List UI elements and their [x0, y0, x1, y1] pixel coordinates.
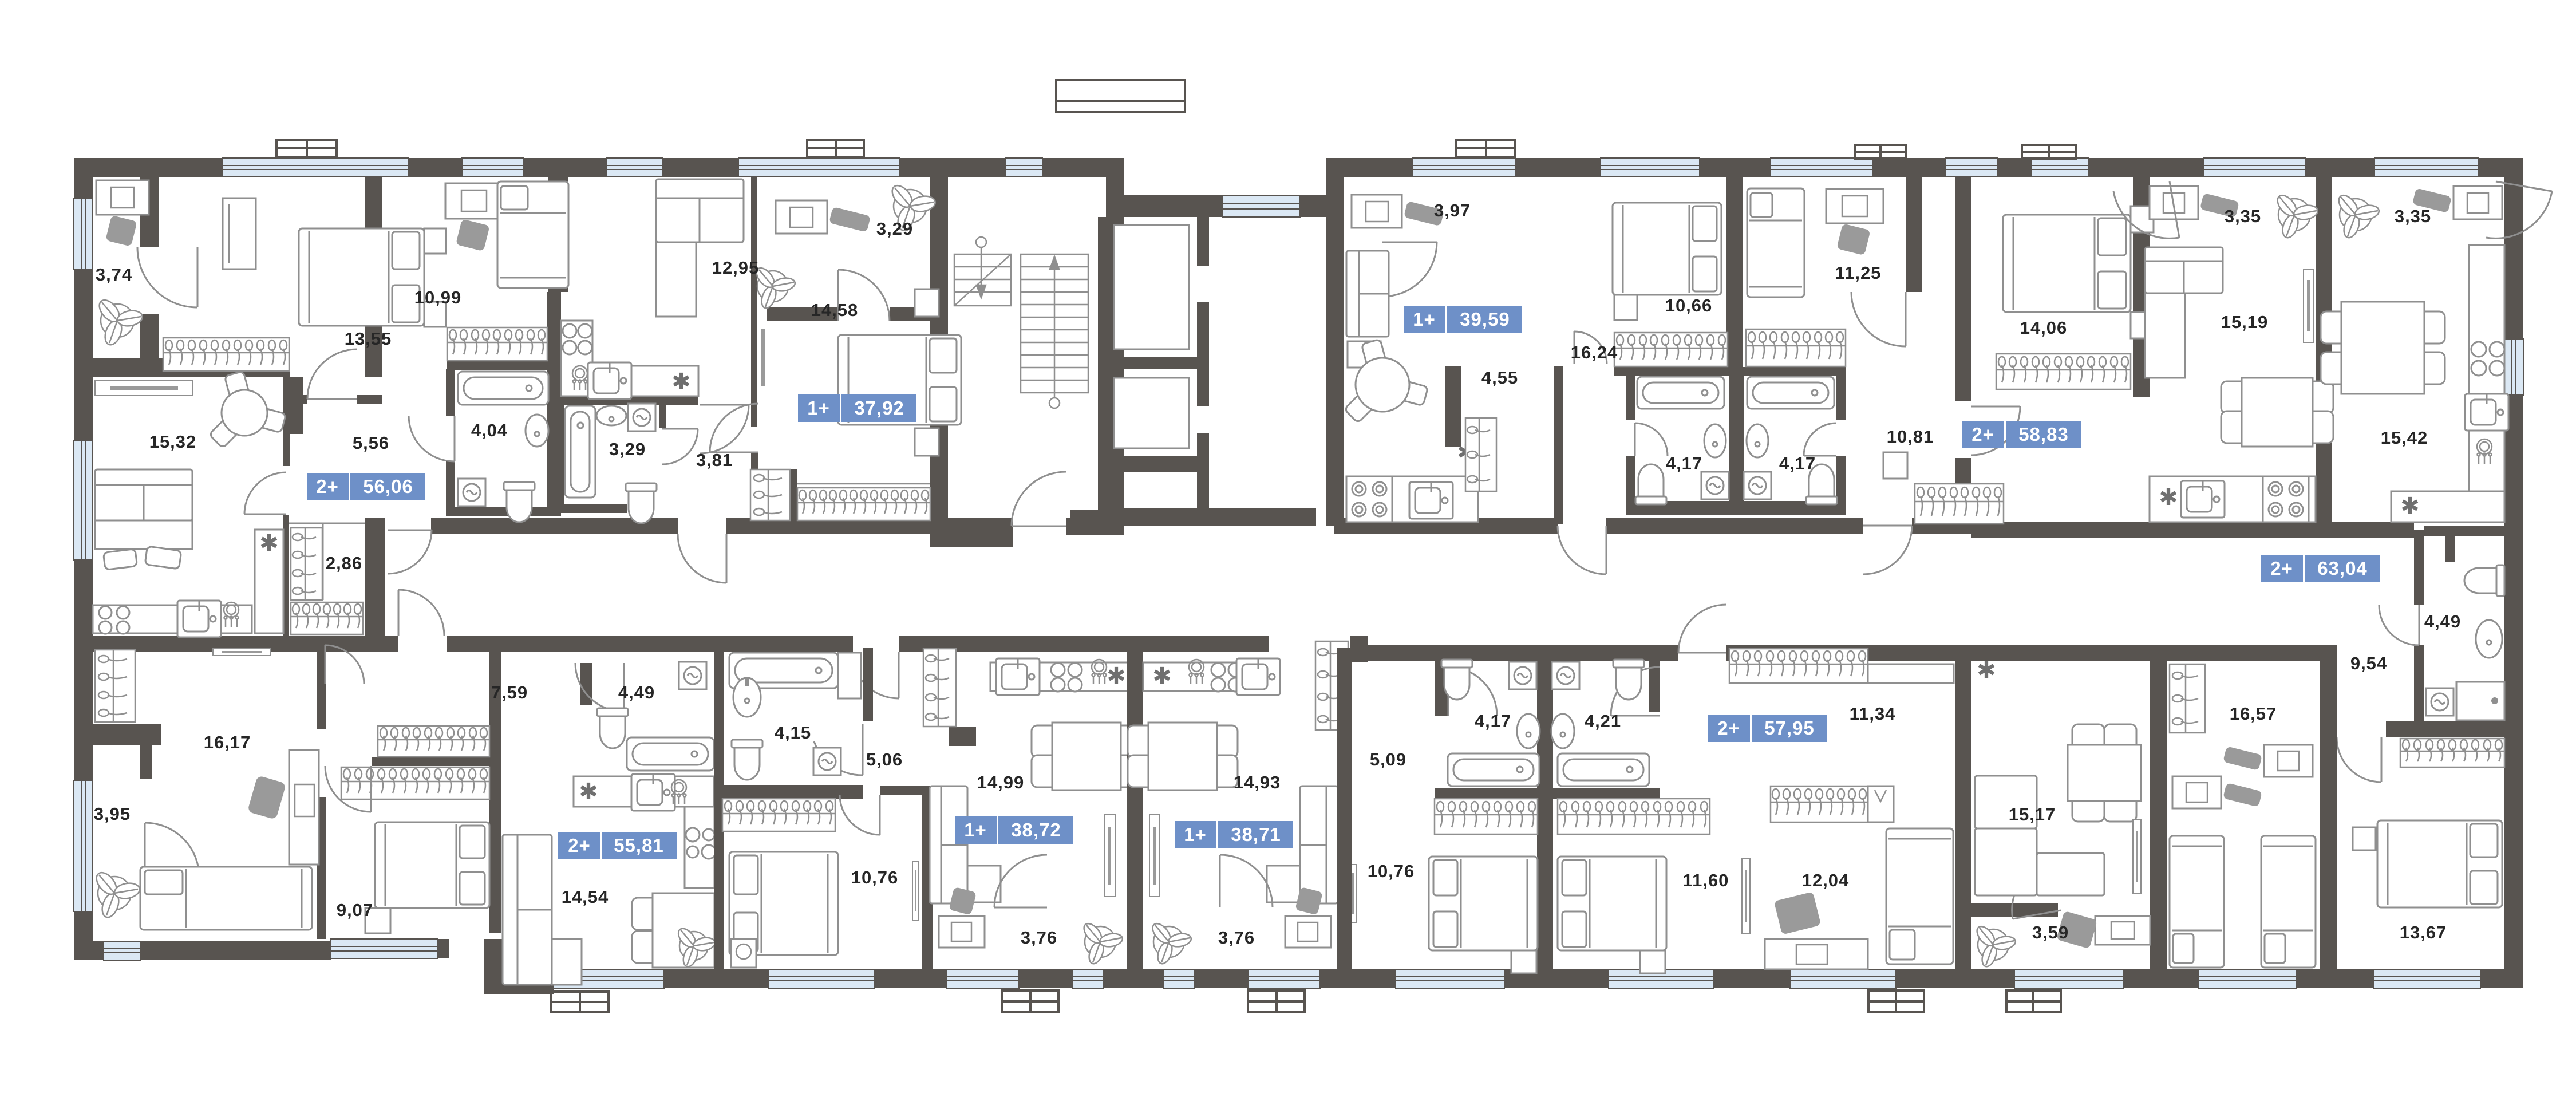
svg-text:58,83: 58,83	[2018, 424, 2069, 445]
svg-text:5,56: 5,56	[353, 433, 389, 453]
svg-text:✱: ✱	[2159, 485, 2178, 510]
svg-text:38,72: 38,72	[1011, 819, 1061, 840]
svg-text:15,17: 15,17	[2009, 804, 2056, 824]
svg-text:10,99: 10,99	[414, 287, 462, 307]
svg-text:4,21: 4,21	[1585, 711, 1621, 731]
svg-text:3,29: 3,29	[609, 439, 646, 459]
svg-text:✱: ✱	[2400, 494, 2420, 519]
svg-text:4,17: 4,17	[1666, 453, 1702, 473]
svg-text:3,76: 3,76	[1021, 927, 1057, 948]
svg-text:39,59: 39,59	[1460, 309, 1510, 330]
svg-text:10,76: 10,76	[851, 867, 899, 887]
svg-text:3,35: 3,35	[2395, 206, 2431, 226]
svg-text:1+: 1+	[1184, 824, 1207, 845]
svg-text:3,59: 3,59	[2032, 922, 2069, 942]
svg-text:2,86: 2,86	[326, 553, 362, 573]
svg-text:✱: ✱	[1977, 658, 1996, 683]
svg-text:3,74: 3,74	[96, 265, 132, 285]
svg-text:16,57: 16,57	[2230, 704, 2277, 724]
svg-text:3,35: 3,35	[2225, 206, 2261, 226]
svg-text:55,81: 55,81	[614, 835, 664, 856]
svg-text:13,55: 13,55	[345, 329, 392, 349]
svg-text:3,76: 3,76	[1218, 927, 1255, 948]
svg-text:3,81: 3,81	[696, 450, 733, 470]
svg-text:10,81: 10,81	[1887, 427, 1934, 447]
svg-text:3,29: 3,29	[876, 219, 913, 239]
svg-text:2+: 2+	[1971, 424, 1994, 445]
svg-text:11,34: 11,34	[1850, 704, 1896, 724]
svg-text:1+: 1+	[1413, 309, 1436, 330]
svg-text:10,66: 10,66	[1665, 295, 1713, 315]
svg-text:56,06: 56,06	[363, 476, 413, 497]
svg-text:4,55: 4,55	[1481, 368, 1518, 388]
svg-text:9,54: 9,54	[2350, 653, 2387, 673]
svg-text:14,93: 14,93	[1234, 772, 1281, 792]
svg-text:4,15: 4,15	[775, 723, 811, 743]
svg-text:5,09: 5,09	[1370, 749, 1406, 769]
svg-text:1+: 1+	[807, 397, 830, 419]
svg-text:✱: ✱	[579, 779, 598, 804]
svg-text:14,06: 14,06	[2020, 318, 2068, 338]
svg-text:15,42: 15,42	[2381, 428, 2428, 448]
svg-text:✱: ✱	[1107, 664, 1126, 689]
svg-text:✱: ✱	[671, 369, 691, 394]
svg-text:2+: 2+	[1717, 717, 1740, 739]
svg-text:14,54: 14,54	[562, 887, 609, 907]
svg-text:14,58: 14,58	[811, 300, 859, 320]
svg-text:4,17: 4,17	[1475, 711, 1511, 731]
svg-text:4,04: 4,04	[471, 420, 508, 440]
svg-text:3,95: 3,95	[94, 804, 131, 824]
svg-text:11,25: 11,25	[1835, 263, 1882, 283]
svg-text:4,49: 4,49	[2424, 611, 2461, 632]
svg-text:63,04: 63,04	[2317, 558, 2368, 579]
svg-text:37,92: 37,92	[854, 397, 904, 419]
svg-text:57,95: 57,95	[1764, 717, 1815, 739]
svg-text:13,67: 13,67	[2400, 922, 2447, 942]
svg-text:2+: 2+	[2270, 558, 2293, 579]
svg-text:16,17: 16,17	[204, 732, 251, 752]
svg-text:15,19: 15,19	[2221, 312, 2269, 332]
svg-text:✱: ✱	[1152, 664, 1172, 689]
svg-text:16,24: 16,24	[1571, 342, 1618, 362]
svg-text:38,71: 38,71	[1231, 824, 1281, 845]
svg-text:4,17: 4,17	[1779, 453, 1816, 473]
svg-text:1+: 1+	[964, 819, 987, 840]
svg-text:5,06: 5,06	[866, 749, 903, 769]
svg-text:7,59: 7,59	[491, 682, 528, 702]
svg-text:9,07: 9,07	[337, 900, 373, 920]
svg-text:12,95: 12,95	[712, 258, 760, 278]
svg-text:2+: 2+	[568, 835, 591, 856]
svg-text:4,49: 4,49	[618, 682, 655, 702]
svg-text:11,60: 11,60	[1683, 870, 1729, 890]
svg-text:✱: ✱	[259, 531, 279, 556]
svg-text:12,04: 12,04	[1802, 870, 1850, 890]
svg-text:15,32: 15,32	[149, 432, 197, 452]
svg-text:2+: 2+	[316, 476, 339, 497]
svg-text:3,97: 3,97	[1434, 200, 1471, 220]
svg-text:14,99: 14,99	[977, 772, 1025, 792]
svg-text:10,76: 10,76	[1368, 861, 1415, 881]
